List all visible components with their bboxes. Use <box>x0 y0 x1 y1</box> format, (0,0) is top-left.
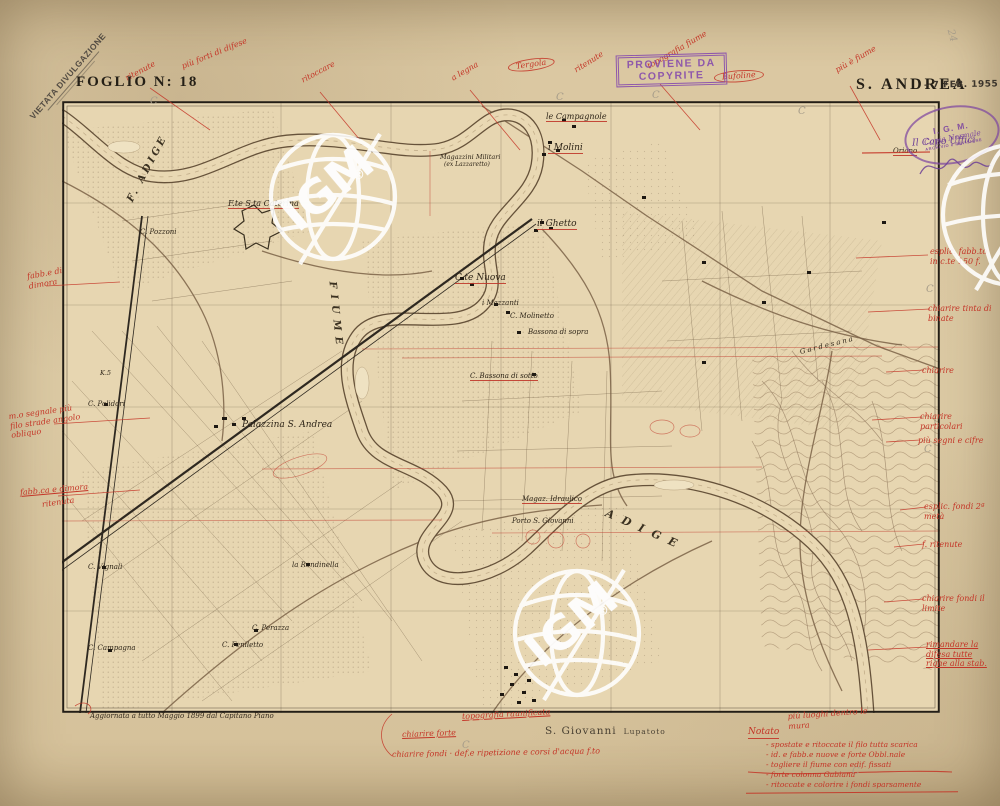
igm-watermark-1: IGM ® <box>248 112 418 282</box>
igm-watermark-partial <box>928 130 1000 300</box>
notes-items: - spostate e ritoccate il filo tutta sca… <box>742 740 972 789</box>
pencil-mark: 24 <box>945 28 959 43</box>
proviene-line2: COPYRITE <box>627 69 716 83</box>
margin-note-bottom: chiarire fondi · def.e ripetizione e cor… <box>392 746 600 759</box>
town-name: S. Giovanni <box>545 725 617 737</box>
reviewer-notes-block: Notato - spostate e ritoccate il filo tu… <box>742 719 972 793</box>
margin-note-top: ritoccare <box>300 59 337 85</box>
registered-mark-icon: ® <box>352 168 365 183</box>
note-line: - ritoccate e colorire i fondi sparsamen… <box>766 780 972 789</box>
margin-note-top: più è fiume <box>834 44 878 75</box>
note-line: - spostate e ritoccate il filo tutta sca… <box>766 740 972 749</box>
proviene-da-copyrite-stamp: PROVIENE DA COPYRITE <box>616 53 728 88</box>
margin-note-top: più forti di difese <box>180 36 248 71</box>
scanned-map-sheet: F. ADIGEFIUMEADIGEle Campagnolei Molinii… <box>0 0 1000 806</box>
margin-note-top: ritenute <box>572 49 605 74</box>
margin-note-top: Tergola <box>507 56 555 74</box>
pencil-mark: C <box>462 740 470 751</box>
globe-icon <box>928 130 1000 300</box>
note-line: - togliere il fiume con edif. fissati <box>766 760 972 769</box>
notes-underline <box>746 791 958 793</box>
note-line: - id. e fabb.e nuove e forte Obbl.nale <box>766 750 972 759</box>
date-stamp: – 7 FEB. 1955 <box>924 79 998 90</box>
sheet-number: FOGLIO N: 18 <box>76 74 198 91</box>
note-line: - forte colonna Gabiana <box>766 770 972 779</box>
town-suffix: Lupatoto <box>624 727 666 736</box>
margin-note-top: a legna <box>450 60 480 83</box>
margin-note-bottom: chiarire forte <box>402 728 456 739</box>
registered-mark-icon: ® <box>596 604 609 619</box>
town-label: S. GiovanniLupatoto <box>545 719 666 738</box>
pencil-mark: C <box>652 90 660 101</box>
revision-note: Aggiornata a tutto Maggio 1899 dal Capit… <box>90 712 274 720</box>
igm-watermark-2: IGM ® <box>492 548 662 718</box>
notes-heading: Notato <box>748 727 779 739</box>
